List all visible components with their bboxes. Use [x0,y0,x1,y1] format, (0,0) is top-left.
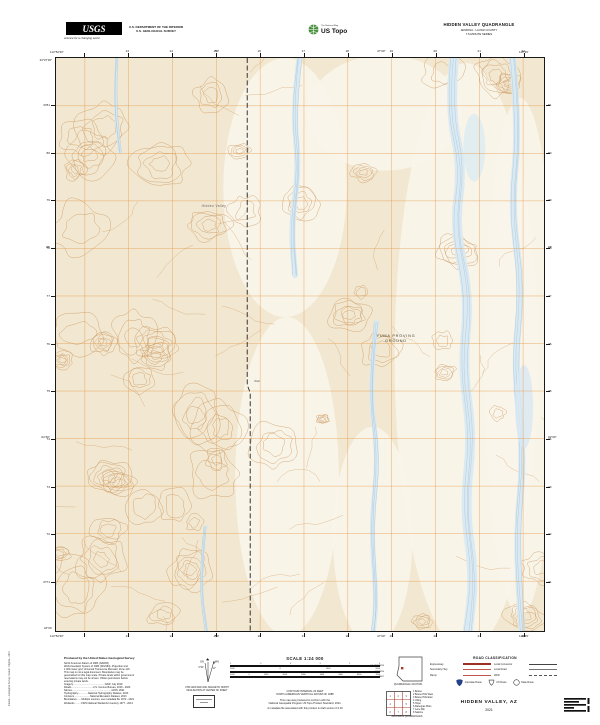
grid-tick [304,53,305,57]
road-line-sample [529,664,557,665]
grid-tick [51,153,55,154]
grid-tick [524,53,525,57]
well-label: Well [242,379,272,383]
grid-tick [51,105,55,106]
military-area-label: YUMA PROVING GROUND [356,334,436,343]
grid-number: 72 [36,532,50,536]
road-line-sample [529,669,557,670]
arizona-state-outline [393,656,423,683]
ustopo-logo: The National Map US Topo [308,24,347,35]
grid-number: 47'30" [377,49,386,53]
grid-number: 77 [548,294,551,298]
grid-number: 22 [522,634,525,638]
production-credits: Produced by the United States Geological… [64,657,184,705]
grid-number: 77 [36,294,50,298]
credits-lines: North American Datum of 1983 (NAD83)Worl… [64,662,184,705]
route-shield-interstate: Interstate Route [456,679,482,686]
svg-text:6: 6 [390,710,392,714]
grid-number: 73 [36,485,50,489]
map-note: A metadata file associated with this pro… [200,707,410,710]
grid-number: 47'30" [377,634,386,638]
scale-tick: 0 [249,674,250,676]
scale-tick: 0 [280,668,281,670]
road-line-sample [463,675,491,676]
grid-number: 17 [302,634,305,638]
grid-number: 02'30" [548,435,557,439]
road-line-sample [529,675,557,676]
scale-bar [230,676,380,678]
grid-number: 79 [548,198,551,202]
nw-latitude-label: 34°07'30" [22,58,52,62]
scale-tick: 3000 [301,674,305,676]
svg-text:8: 8 [406,710,408,714]
grid-tick [172,53,173,57]
grid-tick [348,53,349,57]
svg-text:4: 4 [390,702,392,706]
scale-title: SCALE 1:24 000 [222,656,388,661]
grid-number: 80 [548,151,551,155]
scale-tick: 5000 [338,674,342,676]
grid-number: 75 [36,389,50,393]
svg-text:7: 7 [398,710,400,714]
map-note: NORTH AMERICAN VERTICAL DATUM OF 1988 [200,693,410,696]
grid-tick [51,487,55,488]
grid-number: 76 [548,342,551,346]
quadrangle-location-caption: QUADRANGLE LOCATION [378,684,438,686]
grid-tick [51,344,55,345]
interstate-shield-icon [456,679,463,686]
route-shield-label: Interstate Route [465,681,482,684]
contour-interval-notes: CONTOUR INTERVAL 20 FEETNORTH AMERICAN V… [200,690,410,710]
route-shield-row: Interstate RouteUS RouteState Route [430,679,560,686]
grid-number: 80 [36,151,50,155]
grid-tick [51,391,55,392]
scale-tick: 1000 [230,674,234,676]
map-sheet: USGS science for a changing world U.S. D… [0,0,600,725]
grid-number: 81 [548,103,551,107]
sheet-name: HIDDEN VALLEY, AZ [424,700,554,705]
terrain-map [56,58,544,631]
grid-number: 13 [126,634,129,638]
grid-tick [392,53,393,57]
svg-text:5: 5 [406,702,408,706]
svg-text:1: 1 [390,694,392,698]
scale-tick: 1 [320,663,321,665]
sw-latitude-label: 34°00' [28,626,52,630]
scale-bar [230,665,380,667]
grid-number: 79 [36,198,50,202]
scale-tick: 2000 [283,674,287,676]
grid-tick [128,53,129,57]
grid-number: 14 [170,49,173,53]
mn-label: MN [215,660,219,664]
grid-number: 18 [346,634,349,638]
grid-number: 05' [36,245,50,249]
grid-number: 21 [478,634,481,638]
gn-label: GN [200,660,204,664]
grid-tick [480,53,481,57]
scale-bar-row: 1000010002000METERS [230,668,380,672]
grid-number: 22 [522,49,525,53]
sw-longitude-label: 113°52'30" [50,634,64,638]
svg-text:3: 3 [406,694,408,698]
svg-text:2: 2 [398,694,400,698]
grid-number: 20 [434,634,437,638]
grid-number: 02'30" [36,435,50,439]
quadrangle-title-block: HIDDEN VALLEY QUADRANGLE ARIZONA - LA PA… [413,23,545,37]
grid-tick [436,53,437,57]
grid-number: 14 [170,634,173,638]
usgs-tagline: science for a changing world [64,36,134,40]
scale-block: SCALE 1:24 000 1.50123KILOMETERS10000100… [222,656,388,679]
grid-number: 71 [548,580,551,584]
grid-tick [51,582,55,583]
road-classification-rows: ExpresswayLocal ConnectorSecondary HwyLo… [430,663,560,677]
usgs-logo-text: USGS [82,24,105,34]
ustopo-text: The National Map US Topo [321,25,347,35]
grid-number: 17 [302,49,305,53]
state-shield-icon [513,679,520,686]
road-line-sample [463,663,491,665]
grid-number: 13 [126,49,129,53]
scale-bar-unit: METERS [375,671,384,673]
scale-tick: 1000 [326,668,330,670]
route-shield-label: State Route [521,681,534,684]
scale-tick: 1000 [264,674,268,676]
grid-number: 20 [434,49,437,53]
road-label: Secondary Hwy [430,668,460,671]
grid-tick [51,248,55,249]
grid-tick [51,200,55,201]
route-shield-label: US Route [496,681,506,684]
valley-feature-label: Hidden Valley [184,204,244,208]
grid-tick [260,53,261,57]
grid-tick [51,296,55,297]
grid-number: 18 [346,49,349,53]
grid-number: 19 [390,49,393,53]
grid-number: 16 [258,49,261,53]
quad-series: 7.5-MINUTE SERIES [413,32,545,37]
credit-line: Wetlands..........FWS National Wetlands … [64,702,184,705]
scale-tick: 6000 [357,674,361,676]
road-label: 4WD [494,674,526,677]
ustopo-name: US Topo [321,28,347,35]
barcode-icon [562,697,592,715]
scale-tick: 4000 [320,674,324,676]
grid-tick [51,534,55,535]
grid-number: 3781 [36,103,50,107]
gn-value: 0°02' [199,667,205,669]
road-classification-title: ROAD CLASSIFICATION [430,656,560,660]
us-shield-icon [488,679,495,686]
true-north-star-icon: ★ [206,657,211,662]
road-label: Expressway [430,663,460,666]
scale-bar-unit: KILOMETERS [371,665,384,667]
road-label: Local Road [494,668,526,671]
dept-line2: U.S. GEOLOGICAL SURVEY [116,29,196,33]
road-line-sample [463,669,491,670]
grid-number: 16 [258,634,261,638]
scale-tick: 1 [230,663,231,665]
scale-tick: 0 [290,663,291,665]
ustopo-globe-icon [308,24,319,35]
route-shield-us: US Route [488,679,507,686]
grid-tick [84,53,85,57]
road-label: Ramp [430,674,460,677]
mn-value: 11° [213,668,216,670]
scale-bar-unit: FEET [379,676,384,678]
road-classification-legend: ROAD CLASSIFICATION ExpresswayLocal Conn… [430,656,560,686]
scale-bar-row: 100001000200030004000500060007000FEET [230,674,380,678]
grid-tick [216,53,217,57]
grid-number: 76 [36,342,50,346]
grid-number: 50' [215,634,219,638]
scale-tick: 2 [349,663,350,665]
department-heading: U.S. DEPARTMENT OF THE INTERIOR U.S. GEO… [116,25,196,33]
grid-number: 75 [548,389,551,393]
scale-tick: .5 [260,663,262,665]
quad-location-marker [401,667,403,669]
grid-number: 72 [548,532,551,536]
grid-tick [51,439,55,440]
grid-number: 3771 [36,580,50,584]
sheet-year: 2021 [424,708,554,712]
road-label: Local Connector [494,663,526,666]
imprint-text: Interior—Geological Survey, Reston, Virg… [8,651,11,706]
grid-tick [84,633,85,637]
grid-number: 73 [548,485,551,489]
map-neatline: YUMA PROVING GROUND Hidden Valley Well [55,57,545,632]
grid-number: 05' [548,245,552,249]
nw-longitude-label: 113°52'30" [50,50,64,54]
grid-number: 19 [390,634,393,638]
scale-bar [230,671,380,673]
map-note: National Geospatial Program US Topo Prod… [200,702,410,705]
scale-bar-row: 1.50123KILOMETERS [230,663,380,667]
scale-tick: 1000 [230,668,234,670]
scale-bars: 1.50123KILOMETERS1000010002000METERS1000… [222,663,388,678]
credits-title: Produced by the United States Geological… [64,657,184,660]
grid-number: 50' [215,49,219,53]
usgs-logo: USGS [66,22,122,35]
route-shield-state: State Route [513,679,534,686]
grid-number: 21 [478,49,481,53]
adjoining-quads-caption: ADJOINING QUADRANGLES [374,716,440,718]
adjoining-quads-grid: 12345678 [386,691,411,716]
